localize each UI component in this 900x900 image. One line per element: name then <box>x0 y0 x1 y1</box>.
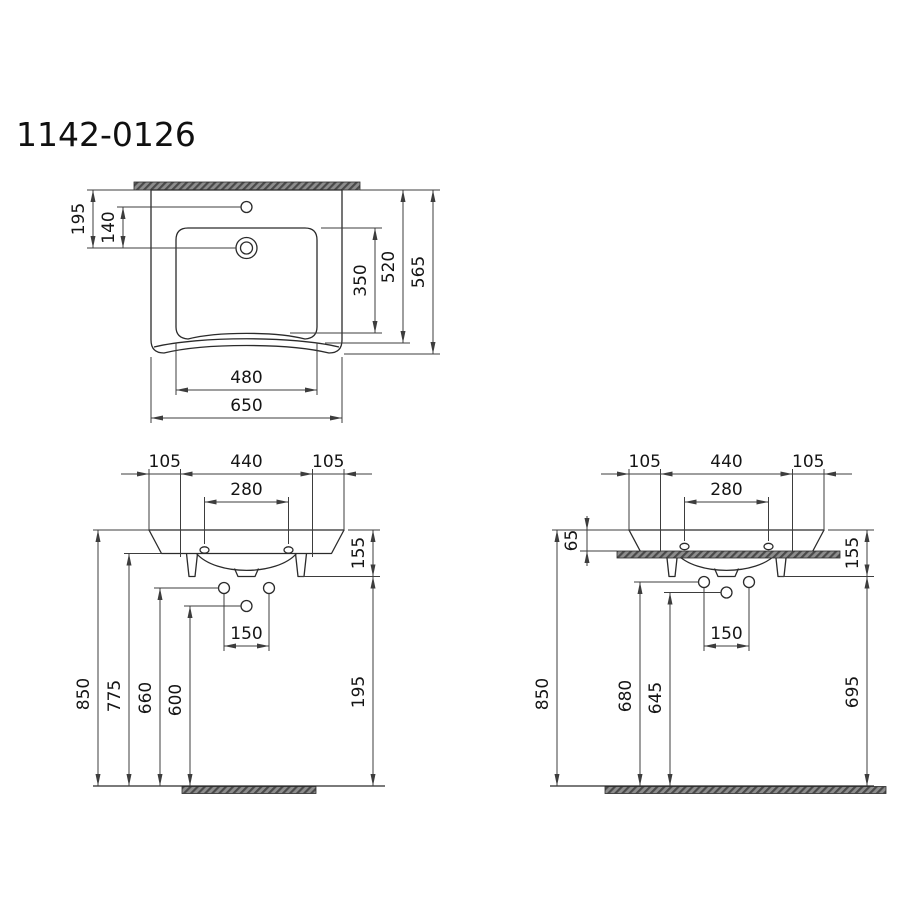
floor-section <box>605 787 886 794</box>
dim-label: 645 <box>646 682 666 714</box>
dim-label: 155 <box>843 537 863 569</box>
support-left <box>187 554 198 577</box>
front-view-countertop: 105 440 105 280 65 850 <box>533 452 886 794</box>
fixing-hole-right <box>284 547 293 553</box>
drawing-canvas: 1142-0126 195 140 3 <box>0 0 900 900</box>
dim-label: 155 <box>349 537 369 569</box>
supply-point-left <box>699 577 710 588</box>
supply-point-right <box>744 577 755 588</box>
dim-rim-height: 155 <box>843 530 867 577</box>
dim-label: 280 <box>710 480 742 500</box>
countertop-section <box>617 551 840 558</box>
dim-label: 680 <box>616 680 636 712</box>
dim-bowl-width: 480 <box>176 343 317 395</box>
dim-label: 140 <box>99 211 119 243</box>
dim-label: 105 <box>312 452 344 472</box>
tap-hole-outer <box>236 238 257 259</box>
tap-hole-inner <box>241 242 253 254</box>
basin-outline <box>151 190 342 353</box>
dim-overall-height: 850 <box>74 530 98 786</box>
front-view-wall-mounted: 105 440 105 280 850 775 <box>74 452 385 794</box>
dim-label: 65 <box>562 530 582 552</box>
dim-supply-height: 680 <box>616 582 640 786</box>
dim-label: 600 <box>166 684 186 716</box>
dim-label: 480 <box>230 368 262 388</box>
dim-tap-hole-spacing: 280 <box>685 480 769 541</box>
dim-label: 105 <box>149 452 181 472</box>
dim-label: 650 <box>230 396 262 416</box>
dim-under-clearance: 695 <box>843 577 867 787</box>
dim-label: 660 <box>136 682 156 714</box>
product-code: 1142-0126 <box>16 115 196 154</box>
support-right <box>296 554 307 577</box>
fixing-hole-right <box>764 543 773 549</box>
plan-view: 195 140 350 520 565 <box>69 182 440 423</box>
dim-label: 850 <box>533 678 553 710</box>
dim-label: 775 <box>105 680 125 712</box>
dim-label: 520 <box>379 251 399 283</box>
dim-bowl-depth: 350 <box>290 228 382 333</box>
wall-section <box>134 182 360 190</box>
dim-label: 440 <box>710 452 742 472</box>
dim-label: 850 <box>74 678 94 710</box>
supply-point-left <box>219 583 230 594</box>
dim-label: 150 <box>710 624 742 644</box>
dim-label: 280 <box>230 480 262 500</box>
drain-point <box>721 587 732 598</box>
supply-point-right <box>264 583 275 594</box>
dim-supply-spacing: 150 <box>224 594 269 651</box>
dim-rim-height: 155 <box>349 530 373 577</box>
fixing-hole-left <box>680 543 689 549</box>
dim-label: 195 <box>349 676 369 708</box>
dim-tap-hole-spacing: 280 <box>205 480 289 544</box>
dim-label: 150 <box>230 624 262 644</box>
dim-overall-height: 850 <box>533 530 557 786</box>
floor-section <box>182 787 316 794</box>
dim-above-counter: 65 <box>562 516 587 566</box>
dim-fixing-holes-height: 775 <box>105 554 129 787</box>
dim-label: 105 <box>629 452 661 472</box>
bowl-outline <box>176 228 317 339</box>
front-counter-dimensions: 105 440 105 280 65 850 <box>533 452 874 786</box>
bowl-underside <box>197 554 297 571</box>
basin-body <box>149 530 344 554</box>
dim-label: 440 <box>230 452 262 472</box>
basin-body <box>629 530 824 554</box>
drawing-sheet: 1142-0126 195 140 3 <box>0 0 900 900</box>
front-wall-dimensions: 105 440 105 280 850 775 <box>74 452 380 786</box>
dim-label: 695 <box>843 676 863 708</box>
dim-tap-hole-offset: 140 <box>99 207 123 248</box>
dim-wall-to-tap: 195 <box>69 190 93 248</box>
dim-label: 195 <box>69 203 89 235</box>
dim-drain-height: 600 <box>166 606 190 786</box>
dim-label: 565 <box>409 256 429 288</box>
dim-drain-height: 645 <box>646 593 670 787</box>
plan-dimensions: 195 140 350 520 565 <box>69 190 440 423</box>
overflow-hole <box>241 202 252 213</box>
dim-label: 105 <box>792 452 824 472</box>
dim-under-clearance: 195 <box>349 577 373 787</box>
fixing-hole-left <box>200 547 209 553</box>
dim-label: 350 <box>351 264 371 296</box>
drain-point <box>241 601 252 612</box>
dim-supply-height: 660 <box>136 588 160 786</box>
